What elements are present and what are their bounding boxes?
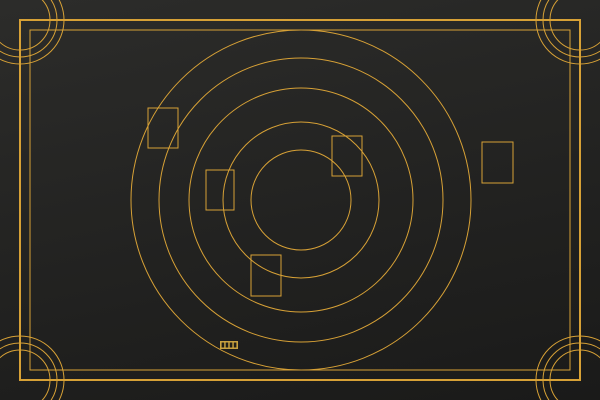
- floating-rectangle-5[interactable]: [482, 142, 513, 183]
- scene-canvas: [0, 0, 600, 400]
- counter-dot: [222, 343, 225, 348]
- target-circles-layer: [131, 30, 471, 370]
- corner-arc: [536, 336, 600, 400]
- floating-rectangle-1[interactable]: [148, 108, 178, 148]
- corner-arc: [0, 350, 50, 400]
- counter-dot: [230, 343, 233, 348]
- inner-border: [30, 30, 570, 370]
- corner-arc: [550, 350, 600, 400]
- target-circle-5: [131, 30, 471, 370]
- counter-dot: [226, 343, 229, 348]
- target-circle-1: [251, 150, 351, 250]
- target-circle-4: [159, 58, 443, 342]
- target-circle-2: [223, 122, 379, 278]
- floating-rectangle-2[interactable]: [206, 170, 234, 210]
- corner-arc: [0, 0, 50, 50]
- floating-rectangle-4[interactable]: [251, 255, 281, 296]
- counter-badge-layer: [220, 341, 238, 349]
- game-stage: [0, 0, 600, 400]
- outer-border: [20, 20, 580, 380]
- corner-arc: [0, 0, 64, 64]
- border-frame-layer: [20, 20, 580, 380]
- corner-arc: [0, 336, 64, 400]
- floating-rectangle-3[interactable]: [332, 136, 362, 176]
- corner-arc: [550, 0, 600, 50]
- corner-arcs-layer: [0, 0, 600, 400]
- corner-arc: [536, 0, 600, 64]
- counter-dot: [234, 343, 237, 348]
